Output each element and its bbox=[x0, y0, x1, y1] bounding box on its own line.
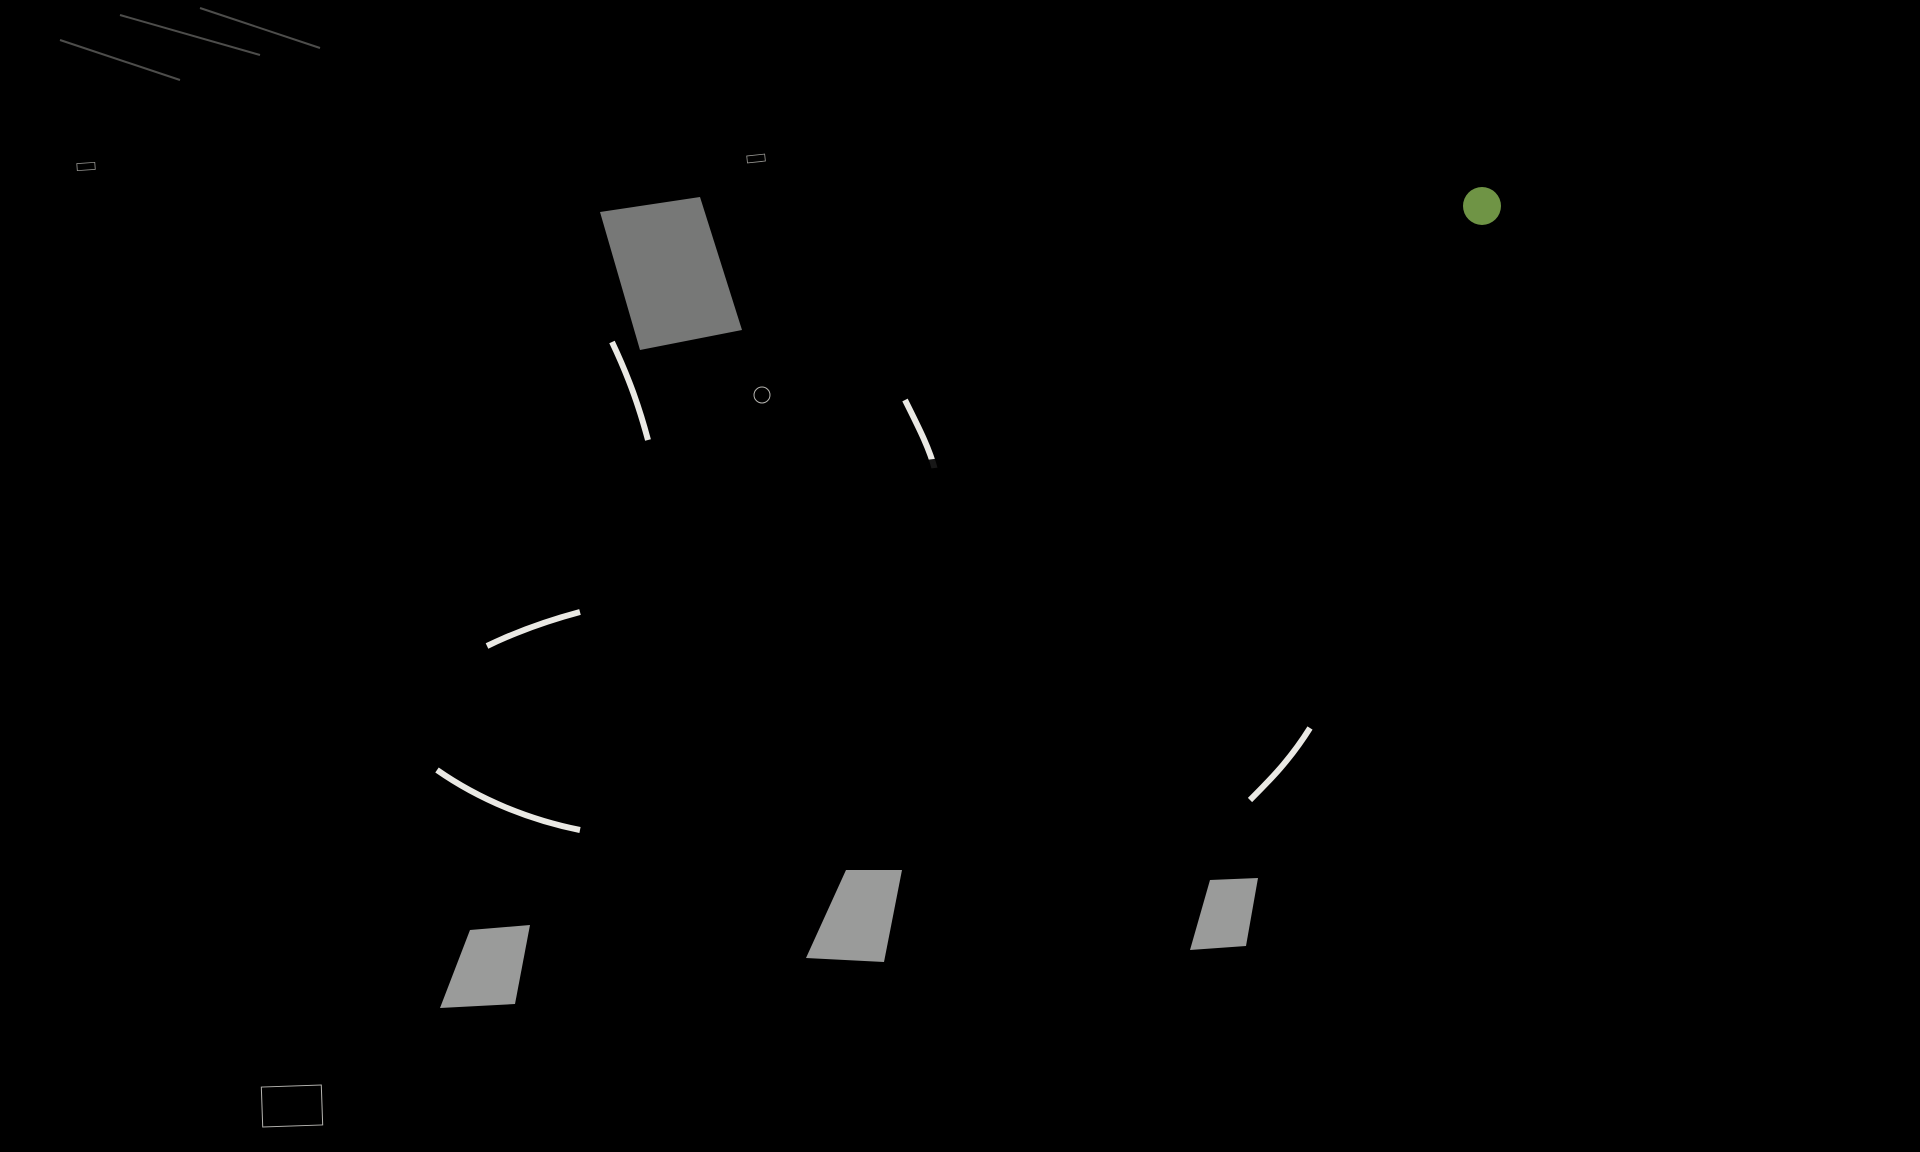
spiral-viewpoint-mound bbox=[798, 524, 946, 688]
bus-shelter bbox=[77, 162, 95, 170]
field-texture bbox=[710, 69, 930, 121]
mound-plateau bbox=[838, 564, 906, 612]
basketball-court bbox=[1002, 568, 1058, 608]
scene-svg bbox=[0, 0, 1920, 1152]
amphitheatre-stage bbox=[888, 468, 902, 482]
aerial-render-stage bbox=[0, 0, 1920, 1152]
field-texture bbox=[60, 310, 180, 550]
bus-shelter bbox=[747, 154, 766, 163]
roundabout-island bbox=[1463, 187, 1501, 225]
court-surface bbox=[1002, 568, 1058, 608]
fountain bbox=[754, 387, 770, 403]
field-texture bbox=[330, 74, 530, 130]
pavilion bbox=[261, 1085, 322, 1127]
